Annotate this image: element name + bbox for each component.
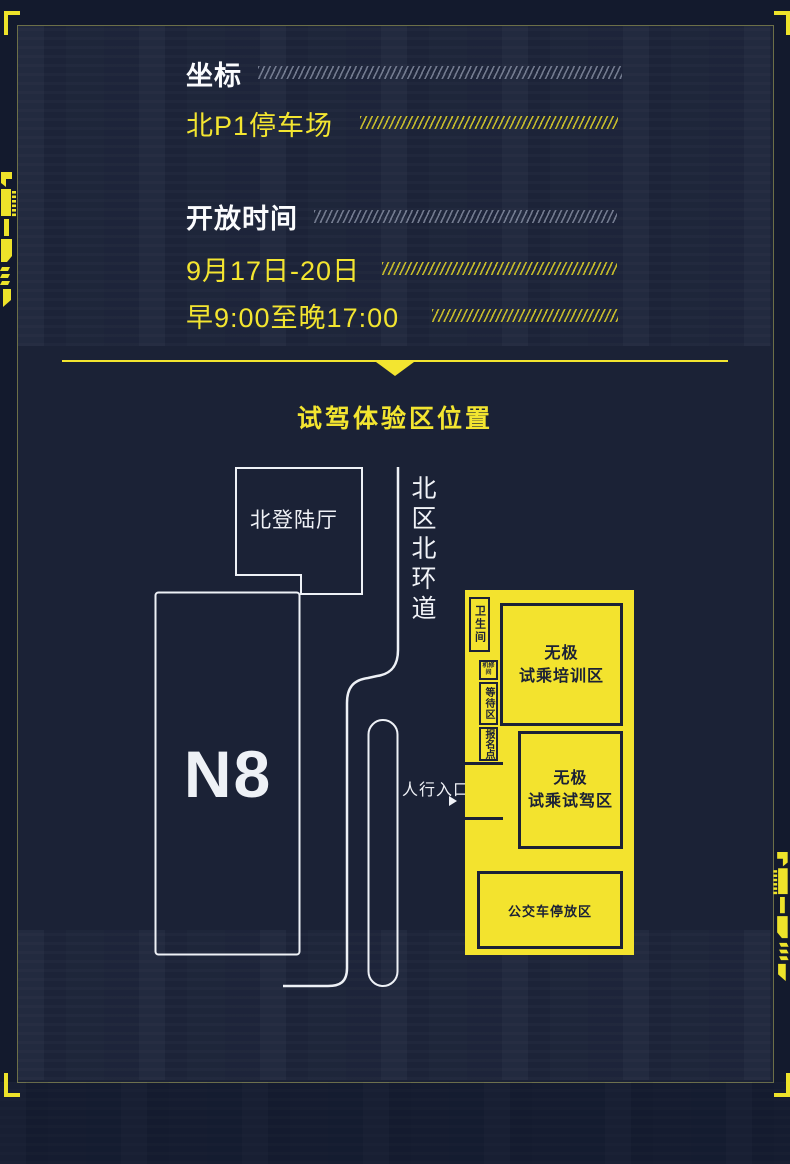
test-drive-zone-label-line1: 无极 <box>553 767 587 790</box>
entrance-gap-line <box>465 762 503 765</box>
corner-bracket-icon <box>774 11 790 35</box>
hatch-divider <box>314 210 617 223</box>
circuit-decoration-icon <box>0 172 17 310</box>
bus-parking-box: 公交车停放区 <box>477 871 623 949</box>
experience-zone: 卫生间 机修间 等待区 报名点 无极 试乘培训区 无极 试乘试驾区 公交车停放区 <box>465 590 634 955</box>
north-hall-label: 北登陆厅 <box>250 504 338 534</box>
test-drive-zone-label-line2: 试乘试驾区 <box>528 790 613 813</box>
corner-bracket-icon <box>774 1073 790 1097</box>
arrow-right-icon <box>449 796 457 806</box>
machine-room-label: 机修间 <box>482 663 495 677</box>
hatch-divider <box>360 116 618 129</box>
event-poster: 坐标 北P1停车场 开放时间 9月17日-20日 早9:00至晚17:00 试驾… <box>0 0 790 1164</box>
hours-dates: 9月17日-20日 <box>186 249 360 288</box>
registration-point-box: 报名点 <box>479 727 498 761</box>
corner-bracket-icon <box>4 11 20 35</box>
city-skyline-outer <box>0 1082 790 1164</box>
test-drive-zone-box: 无极 试乘试驾区 <box>518 731 623 849</box>
hatch-divider <box>382 262 617 275</box>
training-zone-label-line1: 无极 <box>544 642 578 665</box>
hatch-divider <box>432 309 618 322</box>
hatch-divider <box>258 66 622 79</box>
triangle-down-icon <box>376 362 414 376</box>
panel-border <box>17 25 774 1083</box>
coordinate-label: 坐标 <box>186 54 242 93</box>
coordinate-value: 北P1停车场 <box>186 104 333 143</box>
waiting-area-box: 等待区 <box>479 682 498 725</box>
corner-bracket-icon <box>4 1073 20 1097</box>
entrance-gap-line <box>465 817 503 820</box>
hours-label: 开放时间 <box>186 197 298 236</box>
map-title: 试驾体验区位置 <box>0 399 790 435</box>
restroom-box: 卫生间 <box>469 597 490 652</box>
pedestrian-entrance-label: 人行入口 <box>402 776 470 800</box>
training-zone-label-line2: 试乘培训区 <box>519 665 604 688</box>
ring-road-label: 北区北环道 <box>404 475 440 625</box>
hours-time: 早9:00至晚17:00 <box>186 296 399 335</box>
machine-room-box: 机修间 <box>479 660 498 680</box>
training-zone-box: 无极 试乘培训区 <box>500 603 623 726</box>
building-n8-label: N8 <box>156 736 300 812</box>
